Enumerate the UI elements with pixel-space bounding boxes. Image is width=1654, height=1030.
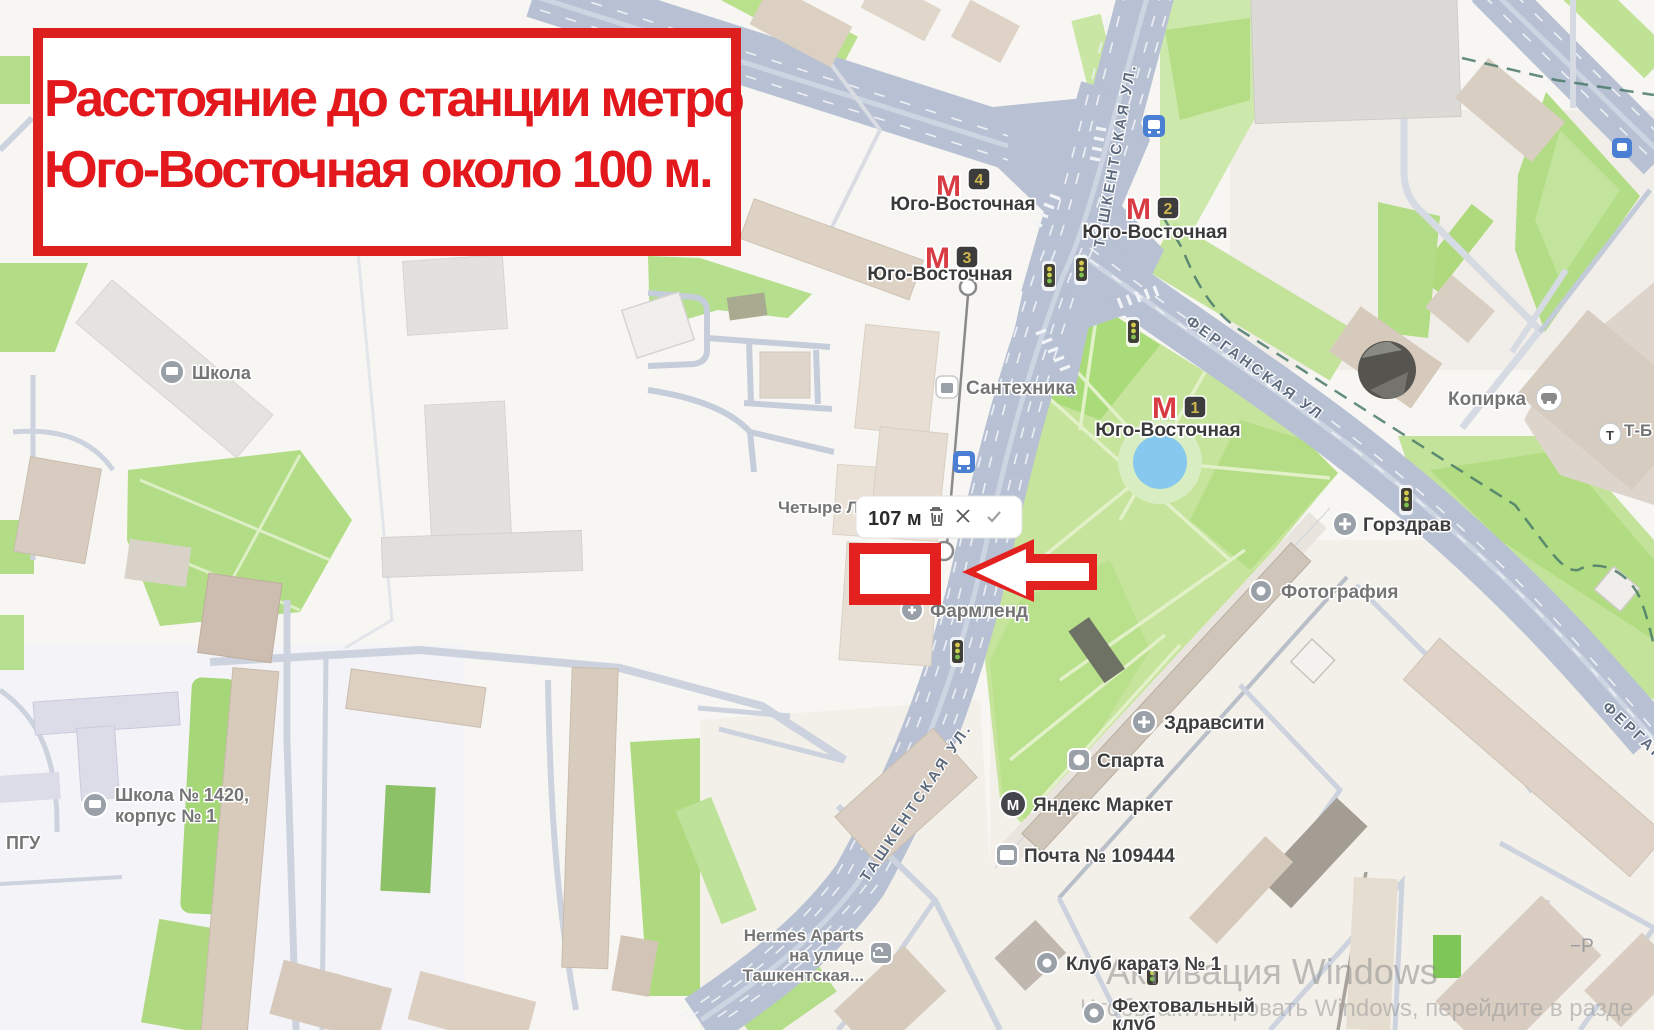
svg-text:Спарта: Спарта xyxy=(1097,751,1164,772)
svg-text:Школа: Школа xyxy=(192,363,252,383)
svg-text:Копирка: Копирка xyxy=(1448,389,1526,410)
svg-text:Юго-Восточная: Юго-Восточная xyxy=(867,264,1012,285)
svg-text:Т-Б: Т-Б xyxy=(1624,421,1652,440)
svg-text:корпус № 1: корпус № 1 xyxy=(115,806,216,826)
svg-text:Юго-Восточная около 100 м.: Юго-Восточная около 100 м. xyxy=(44,141,711,199)
svg-text:107 м: 107 м xyxy=(868,508,922,530)
svg-text:Юго-Восточная: Юго-Восточная xyxy=(1082,222,1227,243)
svg-text:4: 4 xyxy=(975,172,984,189)
svg-text:Здравсити: Здравсити xyxy=(1164,713,1265,734)
svg-text:клуб: клуб xyxy=(1112,1014,1156,1030)
svg-text:Фармленд: Фармленд xyxy=(930,601,1028,622)
svg-text:Ташкентская...: Ташкентская... xyxy=(743,966,864,985)
svg-text:Школа № 1420,: Школа № 1420, xyxy=(115,785,249,805)
svg-text:Клуб каратэ № 1: Клуб каратэ № 1 xyxy=(1066,954,1222,975)
svg-text:М: М xyxy=(1007,797,1020,814)
svg-text:Сантехника: Сантехника xyxy=(966,378,1076,399)
svg-text:Юго-Восточная: Юго-Восточная xyxy=(1095,420,1240,441)
svg-text:Hermes Aparts: Hermes Aparts xyxy=(744,926,864,945)
svg-text:2: 2 xyxy=(1164,201,1173,218)
svg-text:Расстояние до станции метро: Расстояние до станции метро xyxy=(44,70,743,128)
svg-text:ПГУ: ПГУ xyxy=(6,833,41,853)
svg-text:Т: Т xyxy=(1606,428,1614,443)
svg-text:Фотография: Фотография xyxy=(1281,582,1399,603)
svg-text:Почта № 109444: Почта № 109444 xyxy=(1024,846,1175,867)
svg-text:Четыре Л: Четыре Л xyxy=(778,498,859,517)
svg-text:−P: −P xyxy=(1570,936,1594,957)
svg-text:Горздрав: Горздрав xyxy=(1363,515,1451,536)
svg-text:1: 1 xyxy=(1191,400,1200,417)
svg-text:на улице: на улице xyxy=(789,946,864,965)
svg-text:Юго-Восточная: Юго-Восточная xyxy=(890,194,1035,215)
svg-text:Яндекс Маркет: Яндекс Маркет xyxy=(1033,795,1173,816)
